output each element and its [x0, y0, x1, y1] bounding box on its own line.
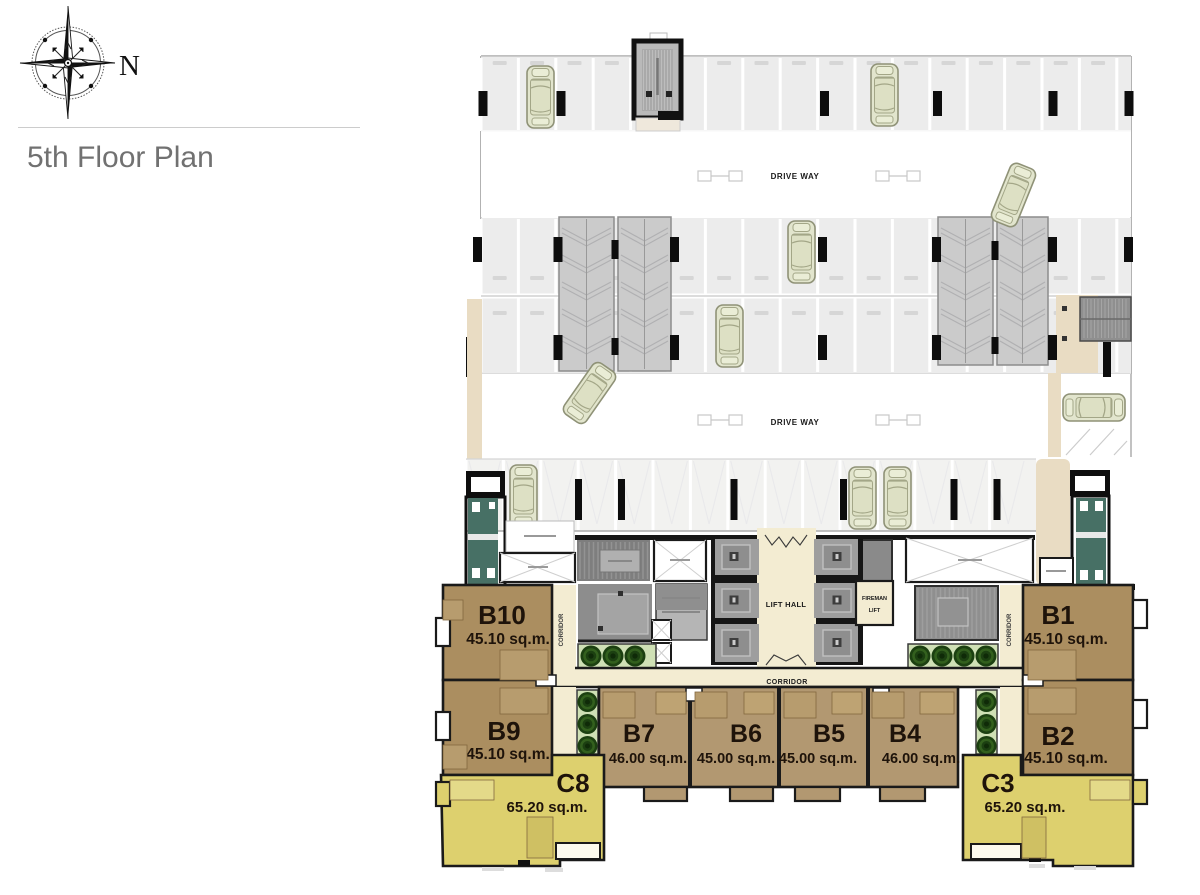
svg-text:45.10 sq.m.: 45.10 sq.m. [1024, 631, 1108, 648]
svg-text:FIREMAN: FIREMAN [862, 596, 887, 602]
svg-text:CORRIDOR: CORRIDOR [766, 679, 807, 686]
svg-text:B7: B7 [623, 720, 655, 748]
svg-text:C3: C3 [981, 768, 1014, 798]
svg-text:B9: B9 [487, 716, 520, 746]
svg-text:B10: B10 [478, 600, 526, 630]
svg-text:DRIVE WAY: DRIVE WAY [771, 172, 820, 181]
svg-text:B6: B6 [730, 720, 762, 748]
svg-text:45.00 sq.m.: 45.00 sq.m. [697, 751, 775, 767]
svg-text:45.10 sq.m.: 45.10 sq.m. [466, 631, 550, 648]
svg-text:45.10 sq.m.: 45.10 sq.m. [1024, 750, 1108, 767]
svg-text:B2: B2 [1041, 721, 1074, 751]
svg-text:CORRIDOR: CORRIDOR [1007, 613, 1013, 646]
svg-text:B5: B5 [813, 720, 845, 748]
svg-text:B1: B1 [1041, 600, 1074, 630]
svg-text:CORRIDOR: CORRIDOR [559, 613, 565, 646]
svg-text:65.20 sq.m.: 65.20 sq.m. [507, 799, 588, 816]
svg-text:LIFT HALL: LIFT HALL [766, 600, 807, 609]
svg-text:46.00 sq.m.: 46.00 sq.m. [882, 751, 960, 767]
svg-text:45.00 sq.m.: 45.00 sq.m. [779, 751, 857, 767]
svg-text:DRIVE WAY: DRIVE WAY [771, 418, 820, 427]
svg-text:N: N [119, 50, 140, 82]
svg-text:46.00 sq.m.: 46.00 sq.m. [609, 751, 687, 767]
svg-text:LIFT: LIFT [869, 608, 881, 614]
svg-text:65.20 sq.m.: 65.20 sq.m. [985, 799, 1066, 816]
svg-text:C8: C8 [556, 768, 589, 798]
svg-text:B4: B4 [889, 720, 921, 748]
svg-text:45.10 sq.m.: 45.10 sq.m. [466, 746, 550, 763]
